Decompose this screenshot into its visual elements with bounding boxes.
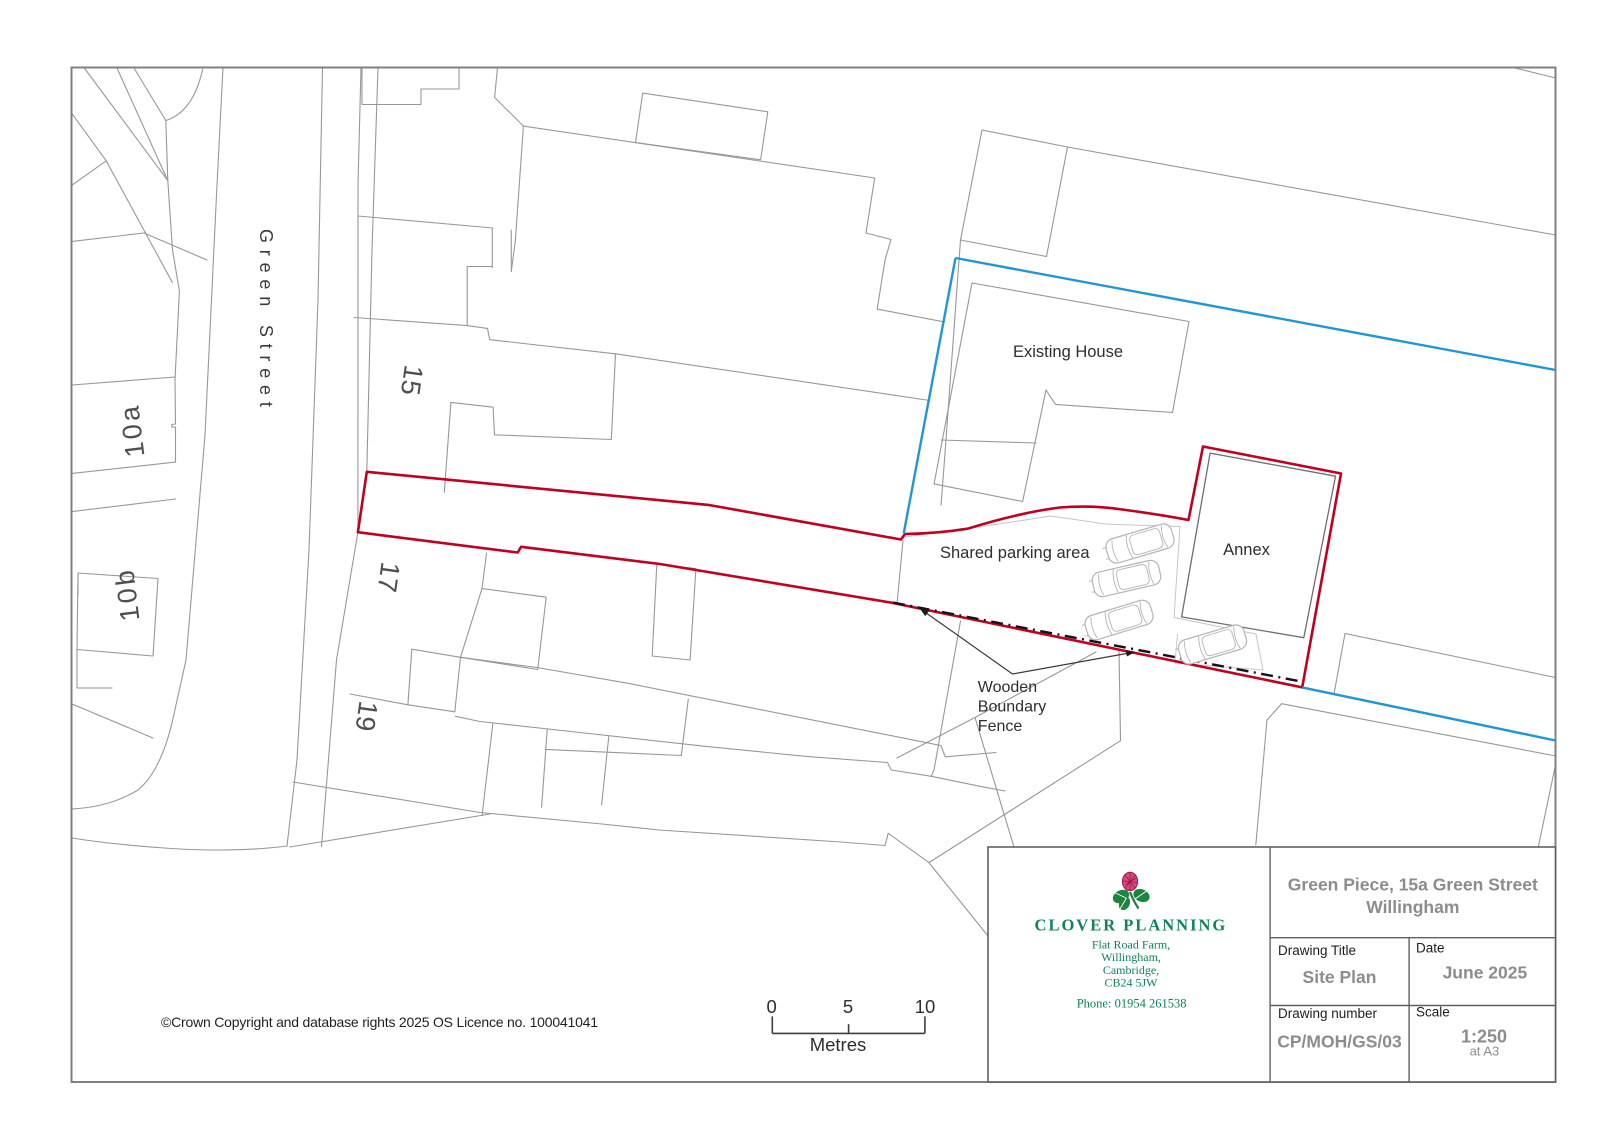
svg-text:0: 0 [766,996,776,1017]
svg-text:Willingham: Willingham [1366,897,1459,917]
svg-text:CLOVER PLANNING: CLOVER PLANNING [1035,916,1228,935]
svg-text:©Crown Copyright and database: ©Crown Copyright and database rights 202… [161,1014,598,1030]
svg-text:Existing House: Existing House [1013,343,1123,361]
svg-text:Annex: Annex [1223,541,1271,559]
svg-text:10: 10 [915,996,936,1017]
svg-text:Shared parking area: Shared parking area [940,544,1090,562]
svg-text:Green Piece, 15a Green Street: Green Piece, 15a Green Street [1288,875,1538,895]
svg-text:Date: Date [1416,941,1445,956]
svg-text:17: 17 [372,560,406,594]
svg-text:CB24 5JW: CB24 5JW [1104,976,1158,990]
svg-text:June 2025: June 2025 [1443,963,1528,983]
svg-text:CP/MOH/GS/03: CP/MOH/GS/03 [1277,1032,1402,1052]
svg-text:5: 5 [843,996,853,1017]
svg-text:Metres: Metres [810,1034,867,1055]
svg-text:Site Plan: Site Plan [1303,967,1377,987]
svg-text:Phone: 01954 261538: Phone: 01954 261538 [1077,997,1187,1011]
svg-text:Wooden: Wooden [978,679,1037,696]
svg-text:Scale: Scale [1416,1005,1450,1020]
svg-text:Fence: Fence [978,718,1023,735]
svg-text:at A3: at A3 [1470,1044,1500,1059]
svg-text:Drawing Title: Drawing Title [1278,943,1356,958]
svg-text:Green Street: Green Street [256,229,276,414]
svg-text:Boundary: Boundary [978,699,1047,716]
svg-text:15: 15 [395,363,429,397]
svg-text:Drawing number: Drawing number [1278,1006,1378,1021]
svg-text:19: 19 [349,699,383,733]
